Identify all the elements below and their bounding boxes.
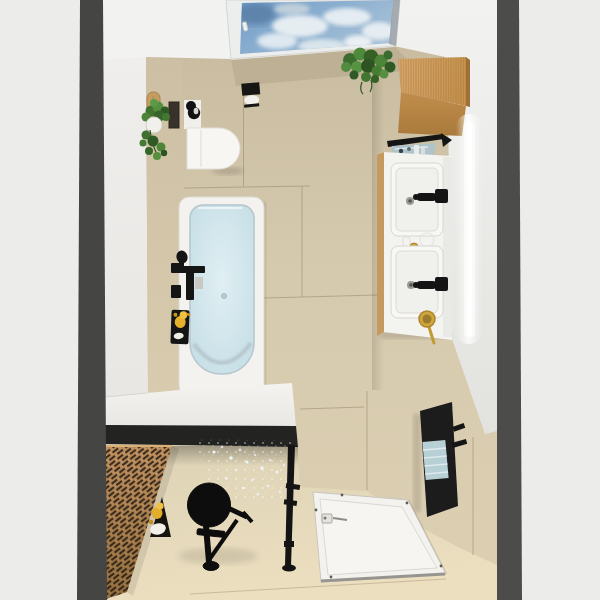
plant-pot <box>146 117 162 133</box>
sink-1 <box>391 163 448 236</box>
shower-drain <box>322 514 332 523</box>
radiator-towels <box>422 440 448 480</box>
vanity <box>377 152 452 343</box>
bathtub-drain <box>222 294 227 299</box>
sink-2 <box>391 246 448 318</box>
wall-niche <box>169 102 179 128</box>
bath-duck-shelf <box>170 310 190 345</box>
led-strip-light <box>456 114 482 344</box>
left-wall-edge-bar <box>77 0 107 600</box>
right-wall-edge-bar <box>497 0 522 600</box>
toilet <box>187 128 244 175</box>
render-viewport <box>0 0 600 600</box>
ceiling-left <box>101 0 231 60</box>
vanity-wood-edge <box>377 152 384 336</box>
left-wall-white <box>101 0 148 397</box>
bathtub <box>170 197 266 396</box>
